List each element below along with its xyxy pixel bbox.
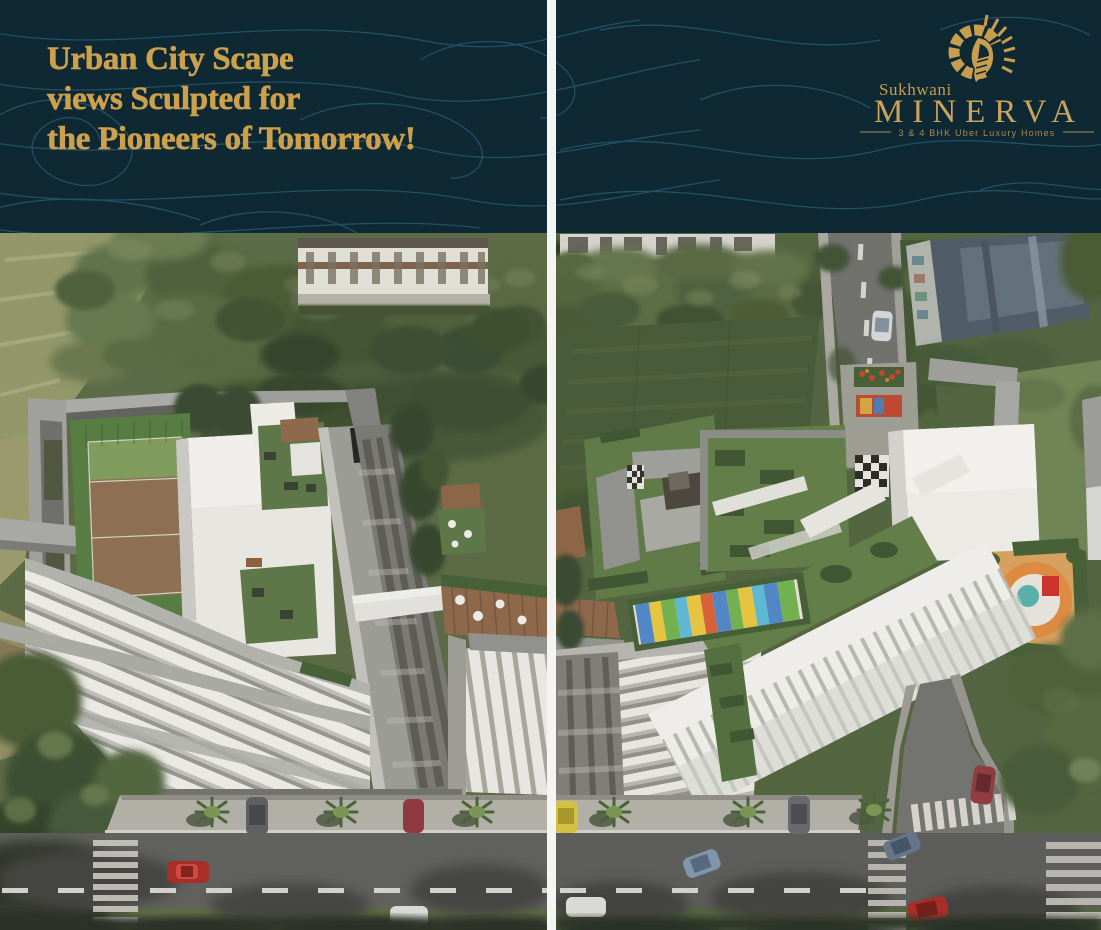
svg-text:3 & 4 BHK Uber Luxury Homes: 3 & 4 BHK Uber Luxury Homes — [899, 128, 1056, 138]
svg-text:the Pioneers of Tomorrow!: the Pioneers of Tomorrow! — [47, 121, 416, 157]
svg-text:Urban City Scape: Urban City Scape — [47, 41, 293, 77]
svg-text:MINERVA: MINERVA — [874, 94, 1084, 130]
svg-text:views Sculpted for: views Sculpted for — [47, 81, 300, 117]
